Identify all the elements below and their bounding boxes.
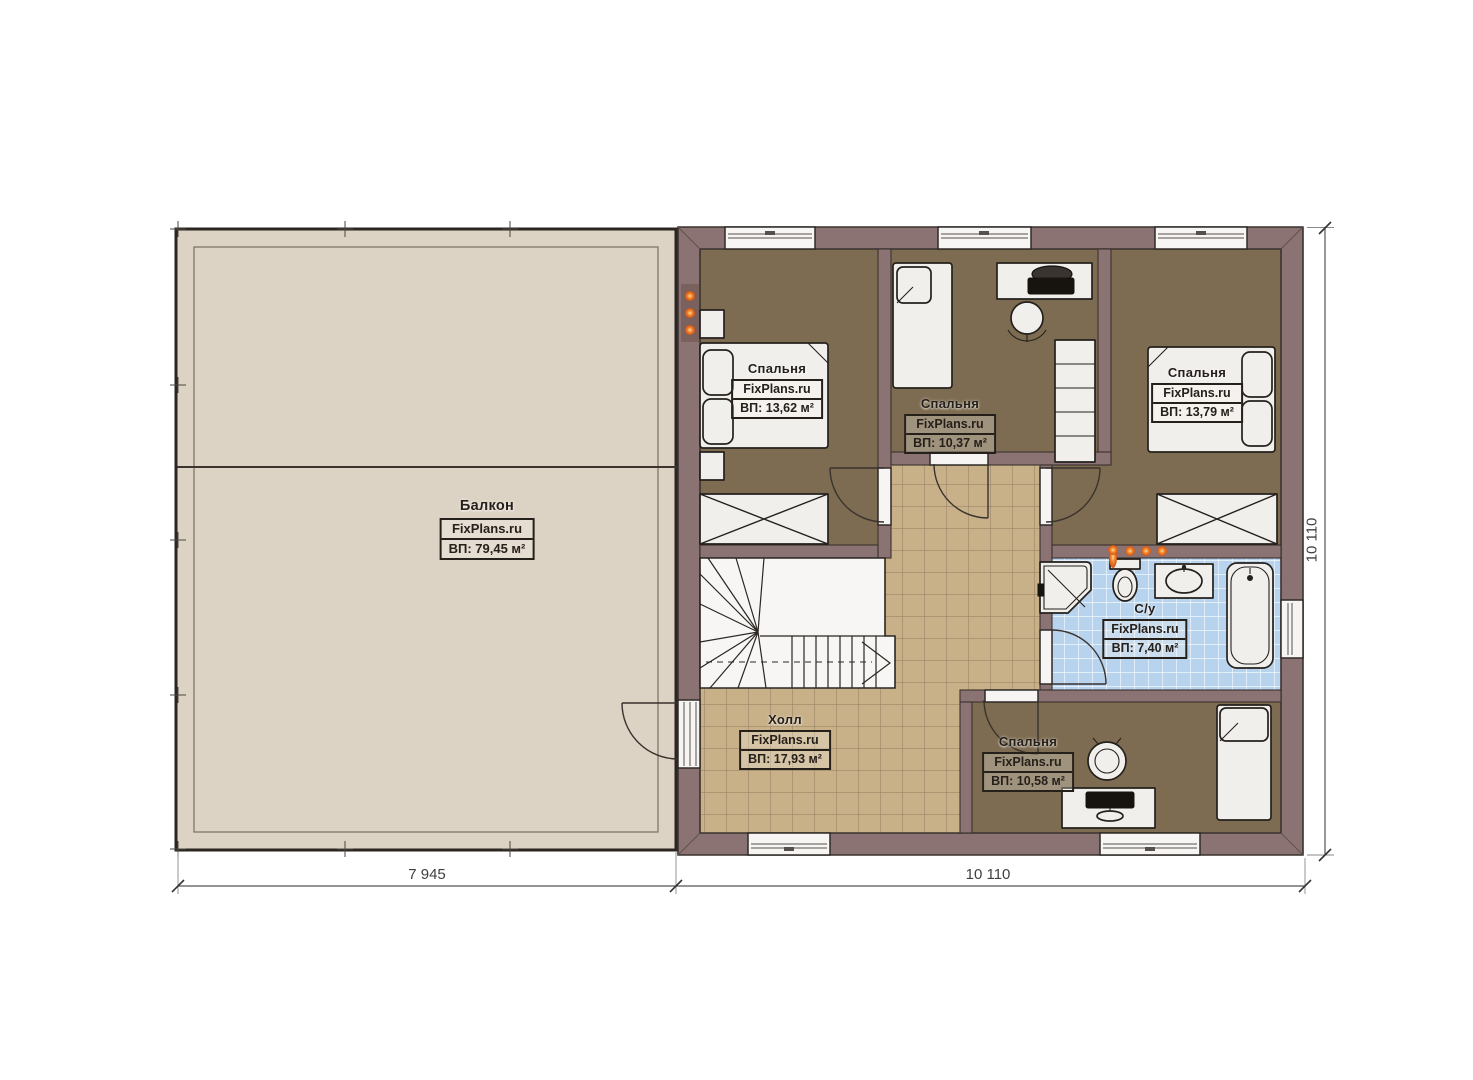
room-area: ВП: 13,79 м² xyxy=(1153,402,1241,421)
window xyxy=(1100,833,1200,855)
room-brand: FixPlans.ru xyxy=(906,416,994,433)
floor-plan-drawing xyxy=(0,0,1473,1080)
window xyxy=(1281,600,1303,658)
room-name: Спальня xyxy=(731,361,823,376)
room-label-bedroom-1: Спальня FixPlans.ru ВП: 13,62 м² xyxy=(731,361,823,419)
room-brand: FixPlans.ru xyxy=(1153,385,1241,402)
room-label-bathroom: С/у FixPlans.ru ВП: 7,40 м² xyxy=(1102,601,1187,659)
room-name: Спальня xyxy=(904,396,996,411)
room-label-balcony: Балкон FixPlans.ru ВП: 79,45 м² xyxy=(440,498,535,560)
balcony xyxy=(170,221,677,857)
window xyxy=(748,833,830,855)
floor-plan-page: Балкон FixPlans.ru ВП: 79,45 м² Спальня … xyxy=(0,0,1473,1080)
room-info-box: FixPlans.ru ВП: 79,45 м² xyxy=(440,518,535,560)
room-name: С/у xyxy=(1102,601,1187,616)
room-info-box: FixPlans.ru ВП: 13,62 м² xyxy=(731,379,823,419)
room-info-box: FixPlans.ru ВП: 13,79 м² xyxy=(1151,383,1243,423)
nightstand xyxy=(700,452,724,480)
shower xyxy=(1038,562,1091,613)
room-name: Холл xyxy=(739,712,831,727)
dimension-bottom-left: 7 945 xyxy=(408,866,446,883)
interior-wall xyxy=(1098,249,1111,465)
room-area: ВП: 7,40 м² xyxy=(1104,638,1185,657)
window xyxy=(725,227,815,249)
window xyxy=(1155,227,1247,249)
nightstand xyxy=(700,310,724,338)
room-brand: FixPlans.ru xyxy=(741,732,829,749)
room-area: ВП: 79,45 м² xyxy=(442,538,533,558)
single-bed xyxy=(893,263,952,388)
room-area: ВП: 13,62 м² xyxy=(733,398,821,417)
room-brand: FixPlans.ru xyxy=(733,381,821,398)
balcony-floor xyxy=(176,229,676,850)
desk xyxy=(997,263,1092,299)
closet xyxy=(700,494,828,544)
sink xyxy=(1155,564,1213,598)
bathtub xyxy=(1227,563,1273,668)
room-brand: FixPlans.ru xyxy=(442,520,533,538)
staircase xyxy=(700,558,895,688)
room-label-bedroom-3: Спальня FixPlans.ru ВП: 13,79 м² xyxy=(1151,365,1243,423)
interior-wall xyxy=(700,545,878,558)
computer-icon xyxy=(1028,278,1074,294)
room-name: Спальня xyxy=(982,734,1074,749)
room-info-box: FixPlans.ru ВП: 7,40 м² xyxy=(1102,619,1187,659)
desk xyxy=(1062,788,1155,828)
room-label-bedroom-2: Спальня FixPlans.ru ВП: 10,37 м² xyxy=(904,396,996,454)
room-info-box: FixPlans.ru ВП: 10,58 м² xyxy=(982,752,1074,792)
wall-lights-bedroom-1 xyxy=(681,284,699,342)
window xyxy=(938,227,1031,249)
room-name: Спальня xyxy=(1151,365,1243,380)
room-area: ВП: 17,93 м² xyxy=(741,749,829,768)
office-chair xyxy=(1008,302,1046,342)
room-area: ВП: 10,58 м² xyxy=(984,771,1072,790)
room-info-box: FixPlans.ru ВП: 10,37 м² xyxy=(904,414,996,454)
monitor-icon xyxy=(1086,792,1134,808)
room-label-bedroom-4: Спальня FixPlans.ru ВП: 10,58 м² xyxy=(982,734,1074,792)
dimension-right-side: 10 110 xyxy=(1304,518,1321,563)
wardrobe xyxy=(1055,340,1095,462)
room-area: ВП: 10,37 м² xyxy=(906,433,994,452)
room-brand: FixPlans.ru xyxy=(984,754,1072,771)
room-label-hall: Холл FixPlans.ru ВП: 17,93 м² xyxy=(739,712,831,770)
room-name: Балкон xyxy=(440,498,535,515)
closet xyxy=(1157,494,1277,544)
dimension-bottom-right: 10 110 xyxy=(966,866,1011,883)
room-info-box: FixPlans.ru ВП: 17,93 м² xyxy=(739,730,831,770)
interior-wall xyxy=(960,702,972,833)
room-brand: FixPlans.ru xyxy=(1104,621,1185,638)
single-bed xyxy=(1217,705,1271,820)
